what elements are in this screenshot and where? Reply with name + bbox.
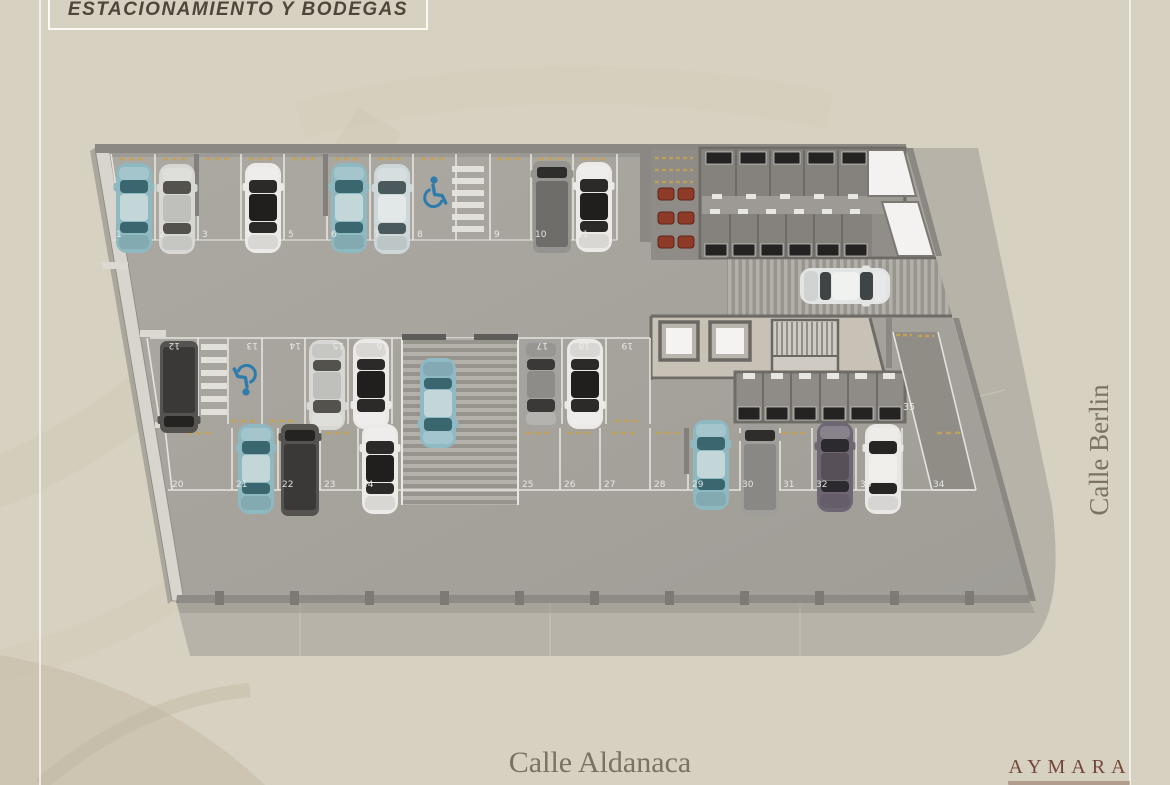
spot-number: 3: [202, 230, 208, 240]
spot-number: 21: [236, 480, 247, 490]
spot-number: 26: [564, 480, 576, 490]
spot-number: 18: [578, 340, 590, 350]
car: [360, 424, 401, 514]
spot-number: 25: [522, 480, 533, 490]
street-label-aldanaca: Calle Aldanaca: [450, 746, 750, 780]
spot-number: 9: [494, 230, 500, 240]
left-guide-line: [39, 0, 41, 785]
rendered-floor-plan-page: 1 2 3 4 5 6 7 8 9 10 11 12 13 14 15 16 1…: [0, 0, 1170, 785]
car: [521, 339, 562, 429]
storage-units-lower: [735, 372, 905, 422]
van: [279, 424, 322, 516]
car: [307, 340, 348, 430]
spot-number: 22: [282, 480, 293, 490]
spot-number: 20: [172, 480, 184, 490]
elevator: [660, 322, 698, 360]
car: [157, 164, 198, 254]
car: [565, 339, 606, 429]
spot-number: 24: [362, 480, 374, 490]
car: [351, 339, 392, 429]
car: [863, 424, 904, 514]
brand-tagline-cutoff: [1008, 781, 1130, 785]
spot-number: 17: [537, 340, 548, 350]
central-ramp: [402, 334, 518, 505]
storage-units-top: [651, 148, 934, 260]
elevator: [710, 322, 750, 360]
spot-number: 27: [604, 480, 615, 490]
car-on-central-ramp: [418, 358, 459, 448]
car: [236, 424, 277, 514]
car-on-ramp: [800, 266, 890, 307]
spot-number: 29: [692, 480, 704, 490]
spot-number: 19: [621, 340, 633, 350]
spot-number: 16: [376, 340, 388, 350]
spot-number: 4: [245, 230, 251, 240]
spot-number: 2: [159, 230, 165, 240]
car: [691, 420, 732, 510]
spot-number: 33: [860, 480, 871, 490]
spot-number: 23: [324, 480, 335, 490]
spot-number: 6: [331, 230, 337, 240]
spot-number: 15: [333, 340, 344, 350]
van: [158, 341, 201, 433]
right-guide-line: [1129, 0, 1131, 785]
spot-number: 10: [535, 230, 547, 240]
page-title: ESTACIONAMIENTO Y BODEGAS: [68, 0, 408, 21]
spot-number: 31: [783, 480, 794, 490]
van: [739, 424, 782, 516]
spot-number: 28: [654, 480, 666, 490]
spot-number: 8: [417, 230, 423, 240]
spot-number: 12: [169, 340, 180, 350]
title-box: ESTACIONAMIENTO Y BODEGAS: [48, 0, 428, 30]
spot-number: 7: [374, 230, 380, 240]
car: [815, 422, 856, 512]
spot-number: 1: [116, 230, 122, 240]
brand-logo: AYMARA: [990, 756, 1150, 779]
spot-number: 5: [288, 230, 294, 240]
street-label-berlin: Calle Berlin: [1084, 370, 1114, 530]
spot-number: 14: [289, 340, 301, 350]
spot-number: 34: [933, 480, 945, 490]
floor-plan-scene: 1 2 3 4 5 6 7 8 9 10 11 12 13 14 15 16 1…: [0, 0, 1170, 785]
spot-number: 32: [816, 480, 827, 490]
spot-number: 35: [903, 402, 915, 413]
spot-number: 11: [577, 230, 588, 240]
staircase: [772, 320, 838, 372]
car: [372, 164, 413, 254]
spot-number: 30: [742, 480, 754, 490]
spot-number: 13: [247, 340, 258, 350]
